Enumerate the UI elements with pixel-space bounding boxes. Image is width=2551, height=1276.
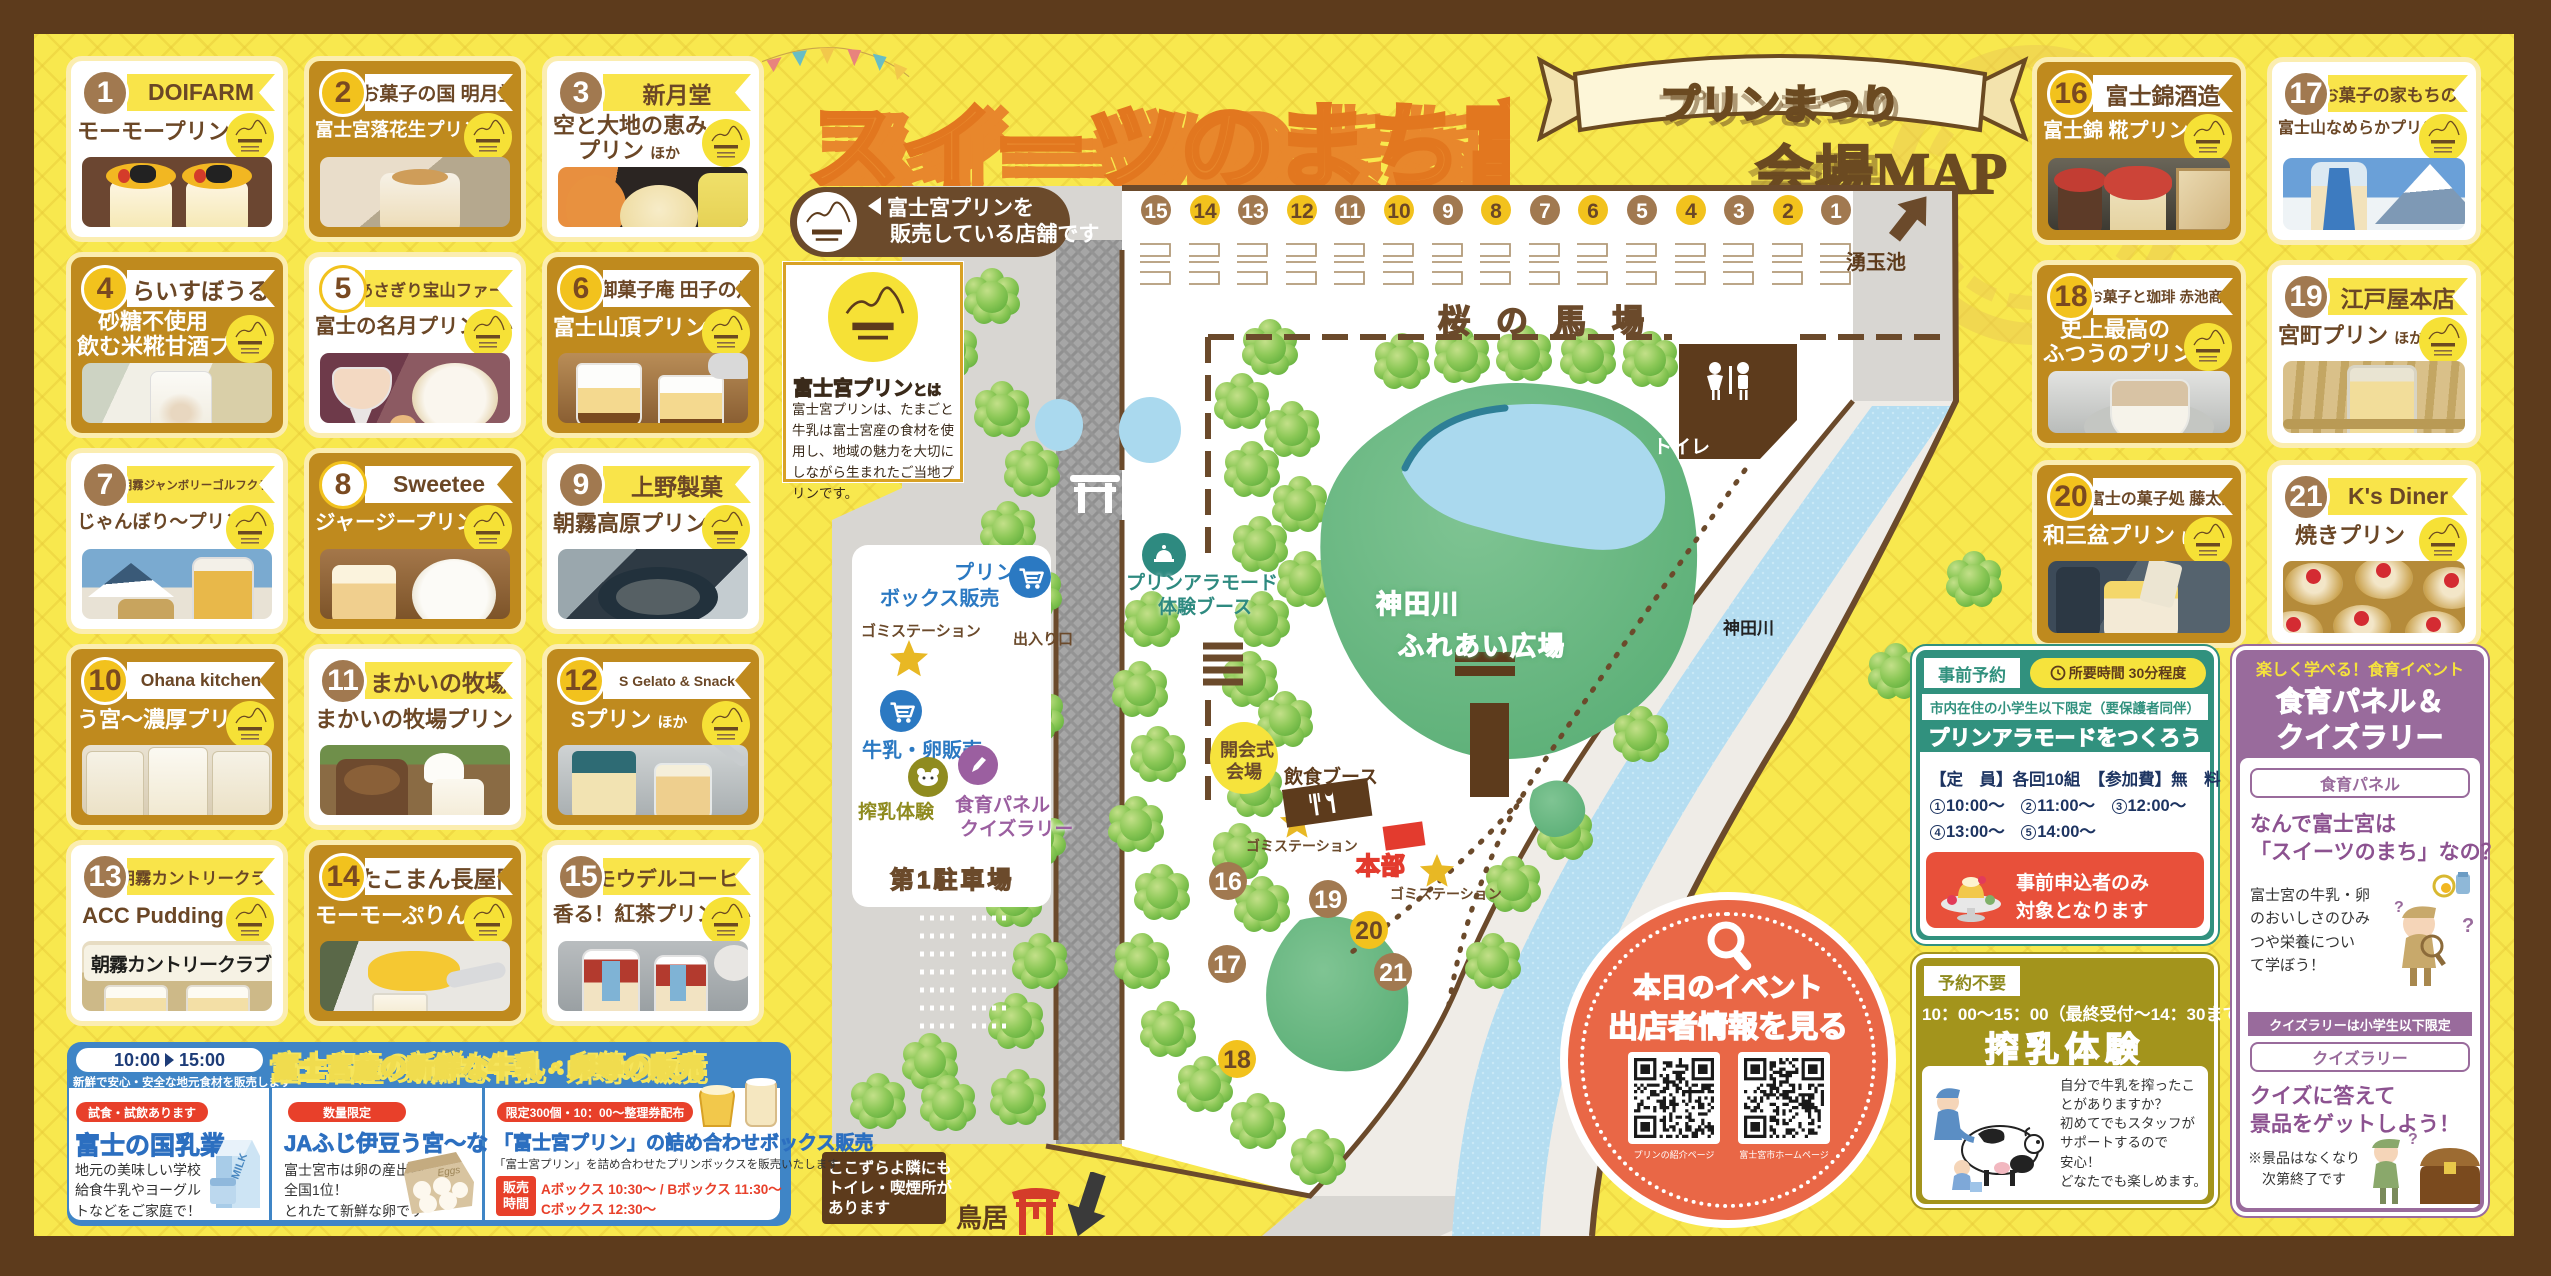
svg-text:?: ? (2394, 899, 2404, 916)
svg-text:?: ? (2462, 915, 2474, 937)
svg-text:?: ? (2408, 1131, 2418, 1148)
